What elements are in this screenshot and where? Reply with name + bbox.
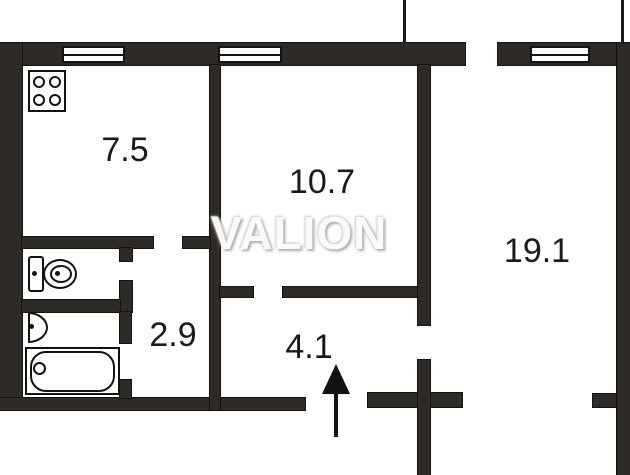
floor-plan: 7.5 10.7 2.9 4.1 19.1 VALION bbox=[0, 0, 630, 475]
stove-burner-icon bbox=[49, 76, 61, 88]
room-area-label-entrance-hall: 4.1 bbox=[249, 329, 369, 365]
wall-bottom-left bbox=[0, 398, 305, 410]
wall-bottom-middle bbox=[368, 393, 462, 407]
wall-living-bottom-a bbox=[220, 287, 253, 297]
wall-kitchen-bottom-stub bbox=[183, 237, 210, 248]
window-icon bbox=[530, 46, 590, 63]
toilet-bowl-inner bbox=[50, 265, 72, 283]
wall-wc-jamb-top bbox=[120, 248, 132, 261]
watermark: VALION bbox=[211, 206, 426, 260]
room-area-label-kitchen: 7.5 bbox=[65, 132, 185, 168]
wall-bath-right-lower bbox=[120, 380, 131, 398]
window-pane-divider bbox=[64, 54, 123, 56]
wall-kitchen-bottom bbox=[22, 237, 153, 248]
toilet-drain bbox=[55, 271, 60, 276]
wall-bath-top bbox=[22, 300, 120, 312]
room-area-label-living-room: 10.7 bbox=[262, 164, 382, 200]
window-icon bbox=[62, 46, 125, 63]
room-area-label-hall-corridor: 2.9 bbox=[113, 317, 233, 353]
wall-living-bedroom-upper bbox=[418, 65, 430, 325]
toilet-flush-button bbox=[32, 271, 37, 276]
stove-burner-icon bbox=[33, 76, 45, 88]
building-line-right bbox=[621, 0, 624, 43]
window-pane-divider bbox=[220, 54, 280, 56]
entrance-arrow-shaft bbox=[334, 390, 338, 437]
wall-living-bottom-b bbox=[283, 287, 418, 297]
window-pane-divider bbox=[532, 54, 588, 56]
building-line-left bbox=[403, 0, 406, 43]
window-icon bbox=[218, 46, 282, 63]
wall-right-outer bbox=[617, 43, 630, 475]
wall-wc-jamb-bottom bbox=[120, 281, 132, 312]
stove-icon bbox=[28, 70, 66, 112]
wall-hall-bedroom-lower bbox=[418, 360, 430, 475]
room-area-label-bedroom: 19.1 bbox=[477, 233, 597, 269]
wall-left-outer bbox=[0, 43, 22, 410]
stove-burner-icon bbox=[49, 94, 61, 106]
bathtub-drain bbox=[33, 362, 46, 375]
sink-drain bbox=[29, 324, 34, 329]
stove-burner-icon bbox=[33, 94, 45, 106]
